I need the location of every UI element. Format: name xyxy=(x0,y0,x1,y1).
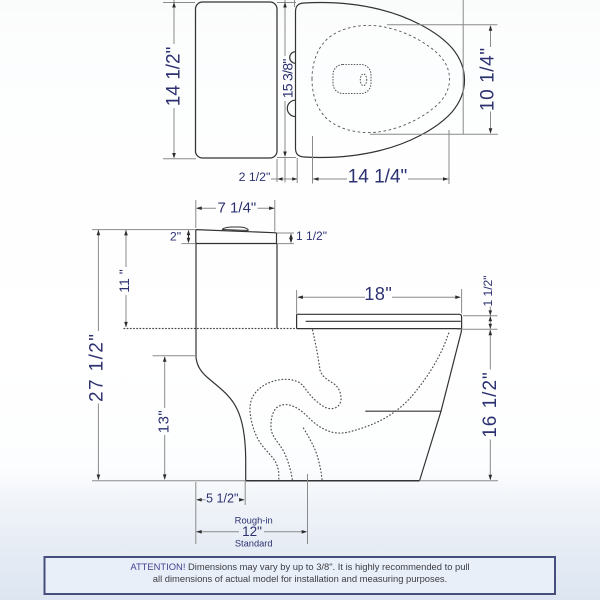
svg-text:2": 2" xyxy=(170,229,181,243)
svg-text:ATTENTION! Dimensions may vary: ATTENTION! Dimensions may vary by up to … xyxy=(130,561,469,572)
svg-text:12": 12" xyxy=(242,524,262,539)
svg-text:14 1/4": 14 1/4" xyxy=(348,167,408,188)
svg-text:10 1/4": 10 1/4" xyxy=(478,47,499,111)
svg-text:16 1/2": 16 1/2" xyxy=(480,371,501,438)
svg-text:7 1/4": 7 1/4" xyxy=(218,200,257,217)
svg-text:5 1/2": 5 1/2" xyxy=(206,492,238,506)
svg-text:1 1/2": 1 1/2" xyxy=(481,276,495,307)
svg-text:14 1/2": 14 1/2" xyxy=(164,47,185,107)
svg-text:2 1/2": 2 1/2" xyxy=(239,170,271,184)
svg-text:27 1/2": 27 1/2" xyxy=(86,333,107,402)
svg-text:15 3/8": 15 3/8" xyxy=(280,59,296,99)
svg-text:1 1/2": 1 1/2" xyxy=(296,229,327,243)
svg-text:Standard: Standard xyxy=(235,538,273,548)
svg-text:18": 18" xyxy=(364,284,392,304)
svg-text:all dimensions of actual model: all dimensions of actual model for insta… xyxy=(153,573,447,584)
svg-text:13": 13" xyxy=(156,410,173,434)
svg-text:11 ": 11 " xyxy=(116,269,132,292)
